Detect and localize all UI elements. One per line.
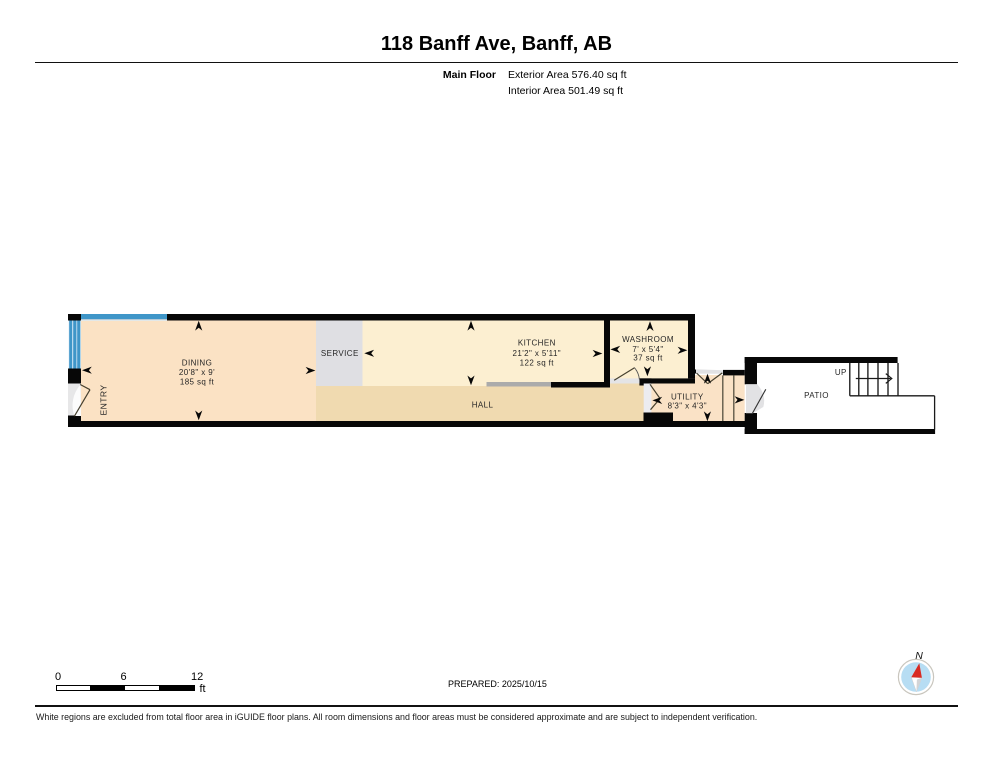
svg-text:N: N: [915, 650, 923, 662]
svg-text:8'3" x 4'3": 8'3" x 4'3": [668, 402, 707, 411]
svg-text:122 sq ft: 122 sq ft: [520, 359, 555, 368]
svg-text:185 sq ft: 185 sq ft: [180, 378, 215, 387]
svg-text:UTILITY: UTILITY: [671, 393, 704, 402]
svg-text:KITCHEN: KITCHEN: [518, 339, 556, 348]
svg-text:21'2" x 5'11": 21'2" x 5'11": [513, 349, 561, 358]
svg-text:DINING: DINING: [182, 358, 212, 367]
svg-text:UP: UP: [835, 368, 847, 377]
svg-text:WASHROOM: WASHROOM: [622, 335, 674, 344]
svg-text:37 sq ft: 37 sq ft: [633, 354, 663, 363]
svg-text:PATIO: PATIO: [804, 391, 829, 400]
svg-text:HALL: HALL: [472, 400, 494, 409]
svg-text:20'8" x 9': 20'8" x 9': [179, 368, 215, 377]
svg-text:ENTRY: ENTRY: [99, 385, 109, 416]
svg-text:SERVICE: SERVICE: [321, 349, 359, 358]
